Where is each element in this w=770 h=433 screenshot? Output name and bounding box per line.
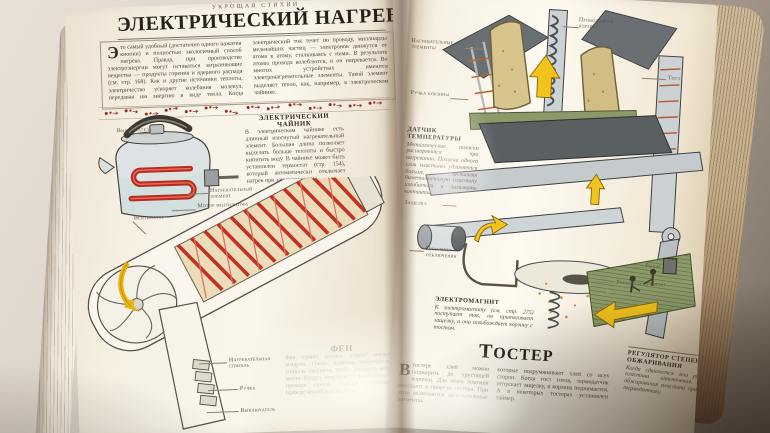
intro-col1: то самый удобный (достаточно одного нажа…	[108, 41, 243, 101]
book-photo-scene: УКРОЩАЯ СТИХИИ ЭЛЕКТРИЧЕСКИЙ НАГРЕВ Это …	[0, 0, 770, 433]
dryer-handle-label: Ручка	[240, 385, 274, 393]
intro-dropcap: Э	[107, 45, 121, 60]
kettle-cord	[219, 177, 239, 178]
intro-col2: Когда электрический ток течет по проводу…	[228, 36, 388, 97]
shutoff-plate-label: Пластина отключения	[425, 246, 474, 261]
toaster-col2-text: которые подрумянивают хлеб со всех сторо…	[496, 367, 610, 408]
dryer-coil-label: Нагревательная спираль	[229, 355, 285, 370]
sensor-note-body: Металлические полоски расширяются при на…	[404, 141, 479, 199]
toast-label: Тост	[668, 75, 694, 83]
kettle-spout	[99, 157, 115, 174]
dryer-body-text: Фен сушит волосы струей нагретого воздух…	[285, 351, 400, 397]
dryer-text-block: ФЕН Фен сушит волосы струей нагретого во…	[284, 341, 400, 397]
basket-label: Проволочная корзина	[578, 17, 629, 33]
toaster-text-col2: которые подрумянивают хлеб со всех сторо…	[494, 367, 609, 433]
toaster-col1-text: тостере хлеб можно поджарить до хрустяще…	[397, 362, 489, 404]
toaster-text-col1: Втостере хлеб можно поджарить до хрустящ…	[396, 362, 489, 427]
electromagnet-note: ЭЛЕКТРОМАГНИТ К электромагниту (см. стр.…	[433, 296, 534, 337]
toaster-shell-bottom	[584, 248, 698, 332]
right-page: Нагревательные элементы Ручка корзины Пр…	[386, 0, 718, 433]
temperature-sensor-note: ДАТЧИК ТЕМПЕРАТУРЫ Металлические полоски…	[404, 126, 480, 200]
toaster-dropcap: В	[399, 362, 413, 378]
magnet-note-body: К электромагниту (см. стр. 275) поступае…	[433, 304, 533, 337]
plate-spring	[548, 292, 560, 329]
dryer-handle	[159, 302, 225, 430]
left-page: УКРОЩАЯ СТИХИИ ЭЛЕКТРИЧЕСКИЙ НАГРЕВ Это …	[65, 0, 408, 433]
